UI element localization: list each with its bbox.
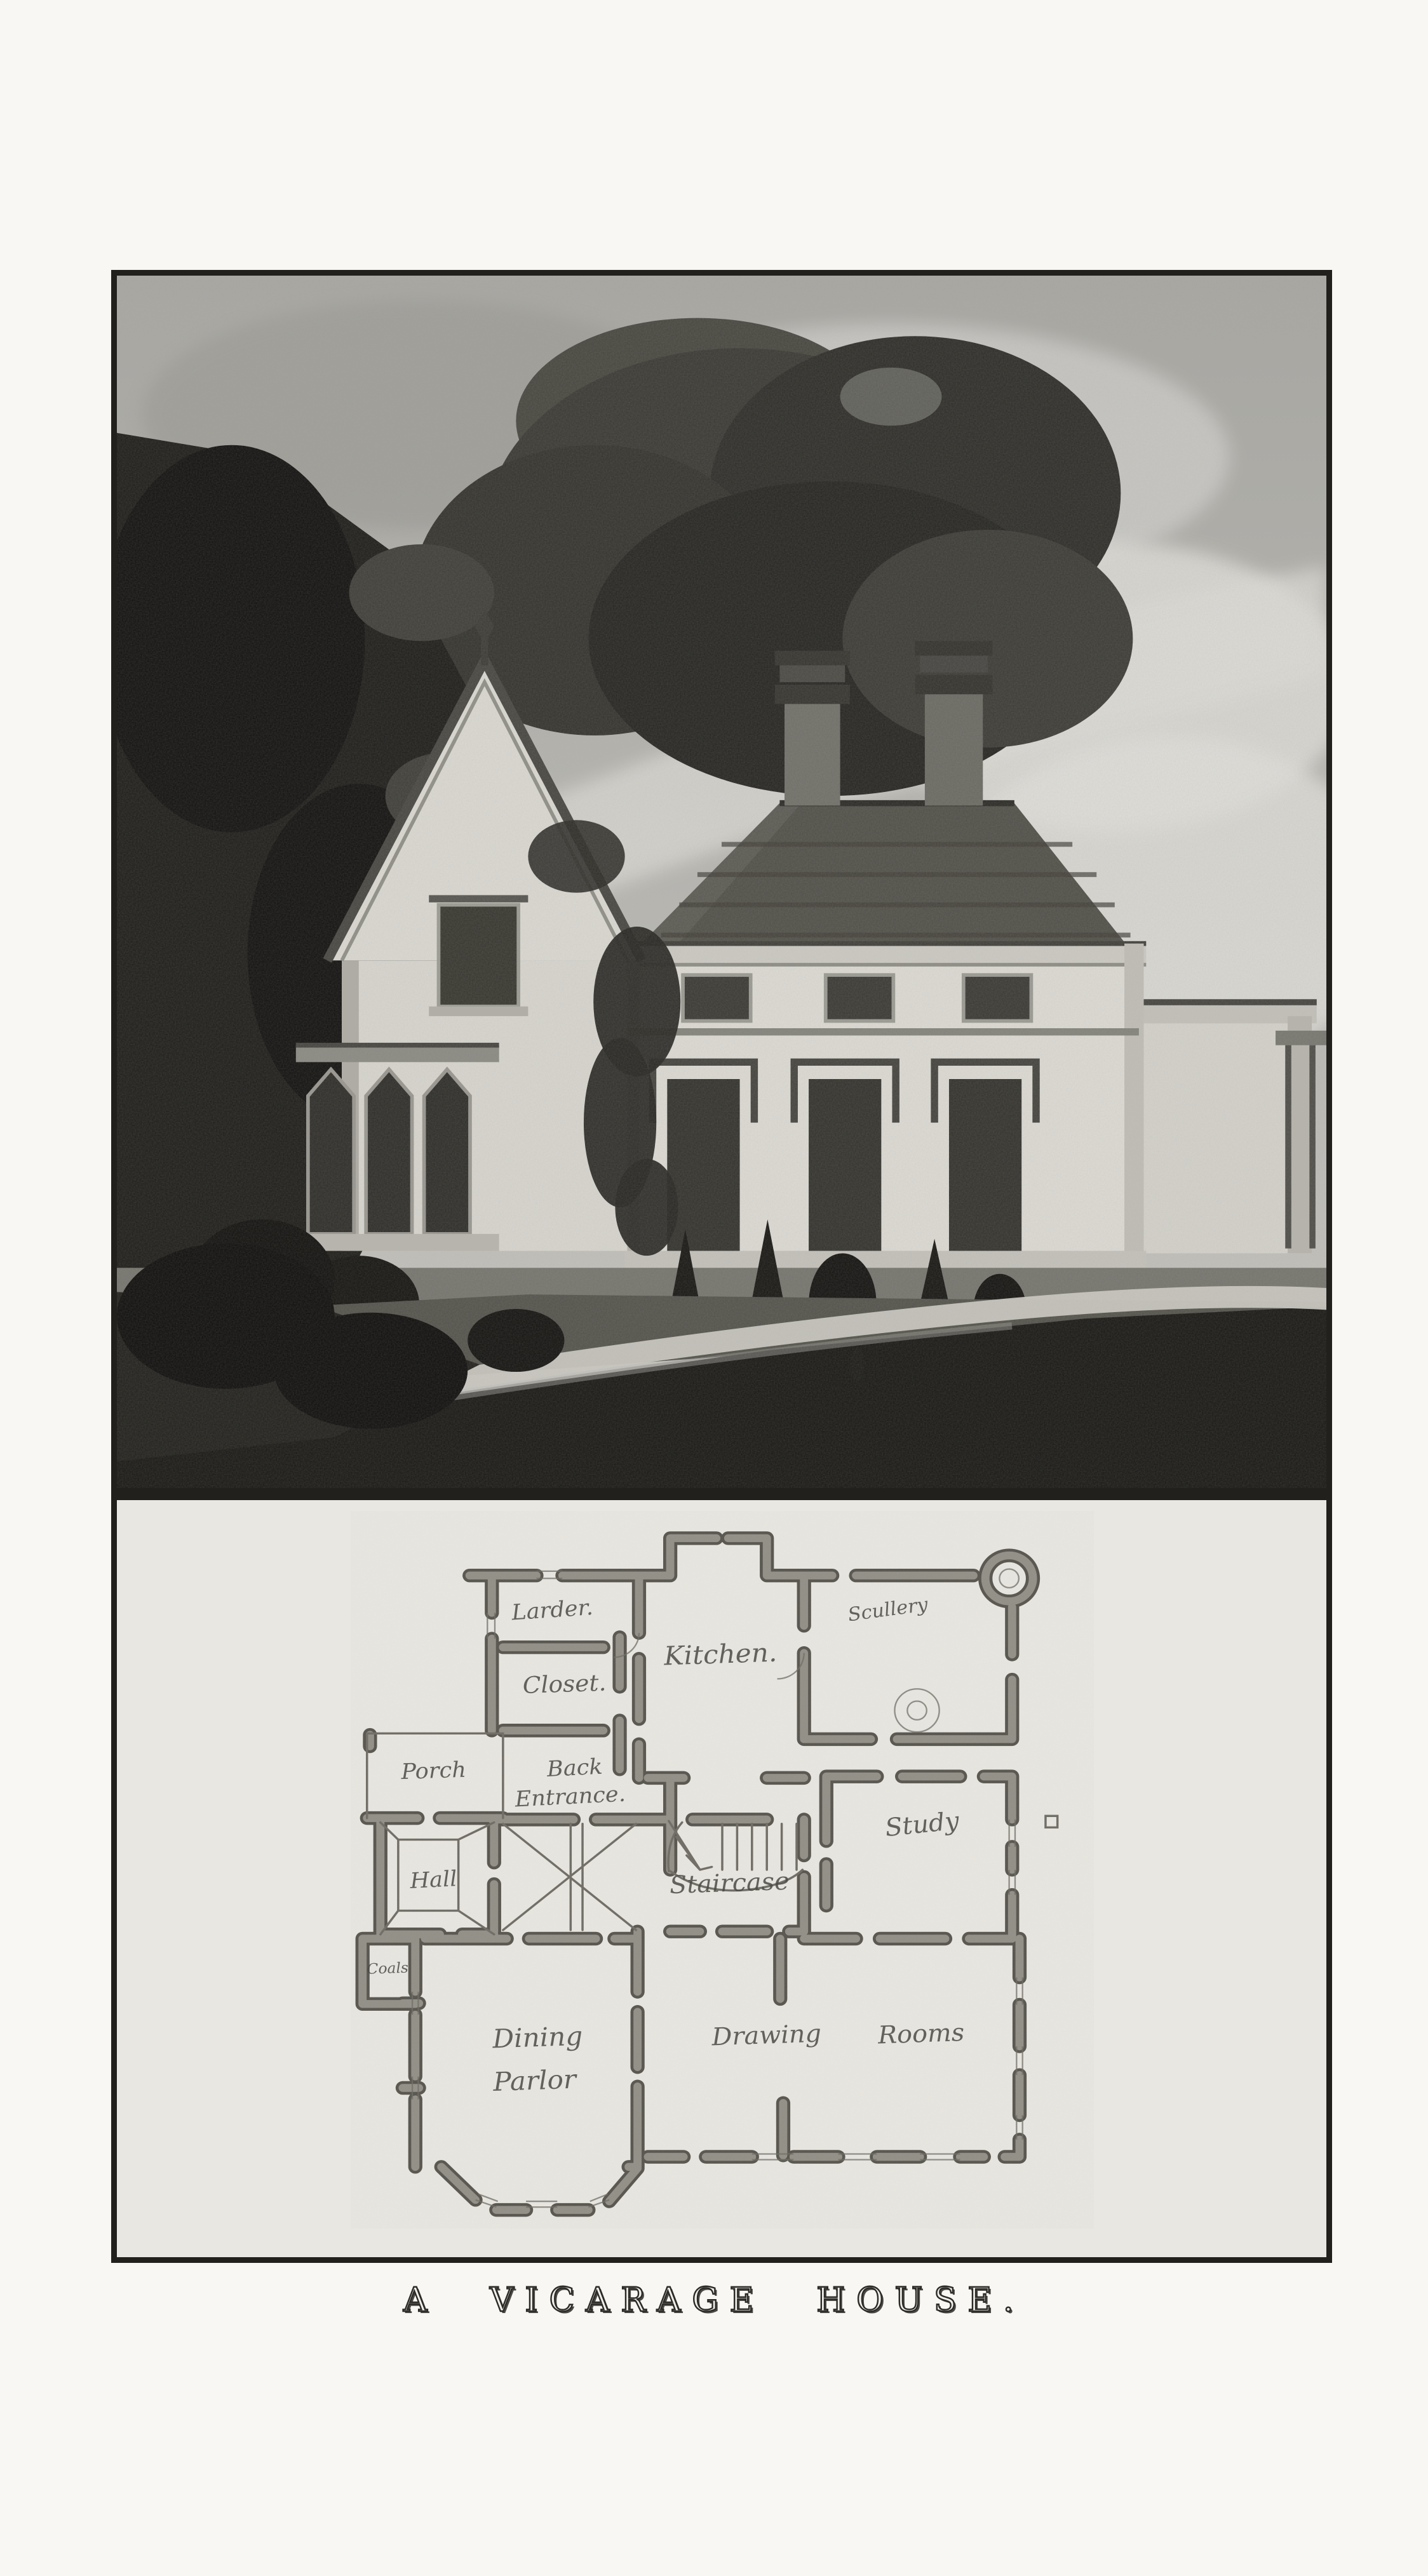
plate-caption-text: A VICARAGE HOUSE. bbox=[403, 2281, 1025, 2319]
paper-grain bbox=[351, 1511, 1094, 2229]
plate-caption: A VICARAGE HOUSE. bbox=[0, 2281, 1428, 2319]
picture-bottom-rule bbox=[117, 1488, 1326, 1500]
house-illustration bbox=[117, 276, 1326, 1500]
halftone-grain bbox=[117, 276, 1326, 1500]
house-illustration-canvas bbox=[117, 276, 1326, 1500]
floor-plan-canvas: Larder. Closet. Kitchen. Scullery Porch … bbox=[351, 1511, 1094, 2229]
plate-frame: Larder. Closet. Kitchen. Scullery Porch … bbox=[111, 270, 1332, 2263]
floor-plan: Larder. Closet. Kitchen. Scullery Porch … bbox=[351, 1511, 1094, 2229]
